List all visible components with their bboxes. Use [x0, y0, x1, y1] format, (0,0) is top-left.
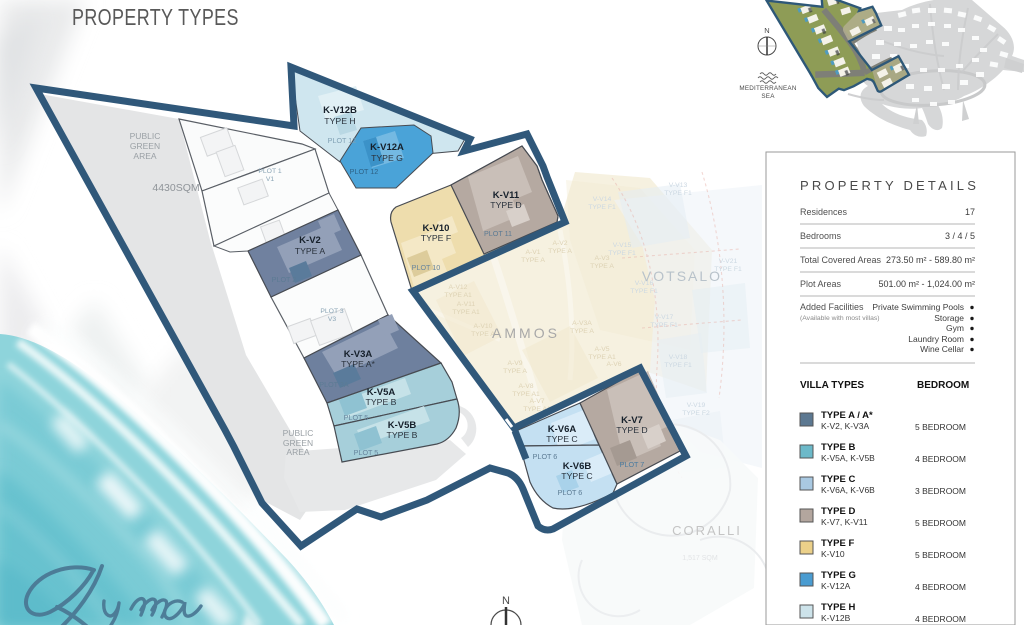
svg-text:A-V7: A-V7	[529, 398, 544, 405]
svg-text:N: N	[502, 595, 510, 607]
svg-text:TYPE G: TYPE G	[821, 570, 856, 581]
svg-text:17: 17	[965, 207, 975, 217]
svg-text:4 BEDROOM: 4 BEDROOM	[915, 582, 966, 592]
svg-text:PLOT 3A: PLOT 3A	[319, 380, 349, 389]
svg-text:GREEN: GREEN	[130, 141, 160, 151]
svg-text:K-V5A, K-V5B: K-V5A, K-V5B	[821, 453, 875, 463]
svg-text:SEA: SEA	[761, 93, 775, 100]
svg-text:PLOT 3: PLOT 3	[320, 308, 344, 315]
svg-text:TYPE B: TYPE B	[366, 397, 397, 407]
svg-text:AREA: AREA	[133, 151, 156, 161]
svg-text:Laundry Room: Laundry Room	[908, 334, 964, 344]
svg-text:4 BEDROOM: 4 BEDROOM	[915, 454, 966, 464]
svg-text:PROPERTY DETAILS: PROPERTY DETAILS	[800, 178, 979, 193]
svg-text:A-V9: A-V9	[507, 360, 522, 367]
svg-text:Private Swimming Pools: Private Swimming Pools	[872, 302, 964, 312]
svg-text:(Available with most villas): (Available with most villas)	[800, 315, 880, 322]
svg-text:A-V12: A-V12	[449, 284, 468, 291]
svg-text:TYPE F1: TYPE F1	[664, 362, 692, 369]
svg-text:TYPE A: TYPE A	[590, 263, 614, 270]
svg-text:K-V10: K-V10	[821, 549, 845, 559]
svg-text:TYPE A1: TYPE A1	[512, 391, 540, 398]
svg-text:TYPE F1: TYPE F1	[630, 288, 658, 295]
svg-text:Storage: Storage	[934, 313, 964, 323]
svg-text:PLOT 12: PLOT 12	[328, 136, 357, 145]
svg-text:PROPERTY TYPES: PROPERTY TYPES	[72, 5, 239, 31]
svg-text:PLOT 7: PLOT 7	[620, 460, 645, 469]
svg-text:TYPE A1: TYPE A1	[452, 309, 480, 316]
svg-text:K-V12B: K-V12B	[821, 613, 851, 623]
svg-text:A-V11: A-V11	[457, 301, 476, 308]
svg-text:Gym: Gym	[946, 323, 964, 333]
svg-text:5 BEDROOM: 5 BEDROOM	[915, 550, 966, 560]
svg-text:MEDITERRANEAN: MEDITERRANEAN	[739, 85, 796, 92]
svg-text:TYPE A: TYPE A	[521, 257, 545, 264]
svg-text:VILLA TYPES: VILLA TYPES	[800, 380, 864, 391]
svg-text:TYPE D: TYPE D	[616, 425, 647, 435]
svg-text:V3: V3	[328, 316, 337, 323]
svg-text:A-V10: A-V10	[474, 323, 493, 330]
svg-text:TYPE A: TYPE A	[295, 246, 326, 256]
svg-text:TYPE F1: TYPE F1	[588, 204, 616, 211]
svg-text:K-V12A: K-V12A	[821, 581, 851, 591]
svg-text:TYPE C: TYPE C	[821, 474, 855, 485]
svg-text:3 / 4 / 5: 3 / 4 / 5	[945, 231, 975, 241]
svg-text:Plot Areas: Plot Areas	[800, 279, 842, 289]
svg-text:V1: V1	[266, 176, 275, 183]
svg-text:4 BEDROOM: 4 BEDROOM	[915, 614, 966, 624]
svg-text:CORALLI: CORALLI	[672, 523, 742, 538]
svg-text:A-V6: A-V6	[606, 361, 621, 368]
svg-text:PLOT 10: PLOT 10	[412, 263, 441, 272]
svg-text:TYPE A: TYPE A	[570, 328, 594, 335]
svg-text:4430SQM: 4430SQM	[152, 182, 199, 194]
svg-text:PUBLIC: PUBLIC	[283, 428, 314, 438]
svg-text:V-V18: V-V18	[669, 354, 688, 361]
svg-text:V-V17: V-V17	[655, 314, 674, 321]
svg-text:TYPE H: TYPE H	[821, 602, 855, 613]
svg-text:Wine Cellar: Wine Cellar	[920, 344, 964, 354]
svg-text:Total Covered Areas: Total Covered Areas	[800, 255, 882, 265]
svg-text:N: N	[764, 26, 769, 35]
svg-text:TYPE B: TYPE B	[821, 442, 855, 453]
svg-text:Residences: Residences	[800, 207, 848, 217]
svg-text:TYPE G: TYPE G	[371, 153, 403, 163]
svg-text:K-V12A: K-V12A	[370, 142, 404, 153]
svg-text:TYPE C: TYPE C	[546, 434, 577, 444]
svg-text:VOTSALO: VOTSALO	[642, 268, 722, 284]
svg-text:TYPE A1: TYPE A1	[588, 354, 616, 361]
svg-text:V-V19: V-V19	[687, 402, 706, 409]
svg-text:V-V15: V-V15	[613, 242, 632, 249]
svg-text:501.00 m² - 1,024.00 m²: 501.00 m² - 1,024.00 m²	[878, 279, 975, 289]
svg-text:5 BEDROOM: 5 BEDROOM	[915, 518, 966, 528]
svg-text:TYPE F1: TYPE F1	[608, 250, 636, 257]
svg-text:PLOT 2: PLOT 2	[272, 275, 297, 284]
svg-text:PUBLIC: PUBLIC	[130, 131, 161, 141]
svg-text:1,517 SQM: 1,517 SQM	[682, 555, 718, 562]
svg-text:3 BEDROOM: 3 BEDROOM	[915, 486, 966, 496]
svg-text:BEDROOM: BEDROOM	[917, 380, 969, 391]
svg-text:PLOT 11: PLOT 11	[484, 229, 512, 238]
svg-text:TYPE F1: TYPE F1	[650, 322, 678, 329]
svg-text:TYPE A1: TYPE A1	[444, 292, 472, 299]
svg-text:TYPE A: TYPE A	[503, 368, 527, 375]
svg-text:273.50 m² - 589.80 m²: 273.50 m² - 589.80 m²	[886, 255, 975, 265]
svg-text:A-V8: A-V8	[518, 383, 533, 390]
svg-text:AREA: AREA	[286, 447, 309, 457]
svg-text:A-V5: A-V5	[594, 346, 609, 353]
svg-text:A-V1: A-V1	[525, 249, 540, 256]
svg-text:PLOT 1: PLOT 1	[258, 168, 282, 175]
svg-text:K-V12B: K-V12B	[323, 105, 357, 116]
svg-text:K-V2, K-V3A: K-V2, K-V3A	[821, 421, 870, 431]
svg-text:TYPE A*: TYPE A*	[341, 359, 375, 369]
svg-text:K-V7, K-V11: K-V7, K-V11	[821, 517, 868, 527]
svg-text:V-V21: V-V21	[719, 258, 738, 265]
svg-text:PLOT 6: PLOT 6	[533, 452, 558, 461]
svg-text:K-V6A, K-V6B: K-V6A, K-V6B	[821, 485, 875, 495]
svg-text:TYPE D: TYPE D	[490, 200, 521, 210]
svg-text:AMMOS: AMMOS	[492, 325, 560, 341]
svg-text:PLOT 5: PLOT 5	[344, 413, 369, 422]
svg-text:TYPE F: TYPE F	[821, 538, 854, 549]
svg-text:TYPE F: TYPE F	[421, 233, 451, 243]
svg-text:TYPE H: TYPE H	[324, 116, 355, 126]
svg-text:K-V2: K-V2	[299, 235, 321, 246]
svg-text:PLOT 12: PLOT 12	[350, 167, 379, 176]
svg-text:Bedrooms: Bedrooms	[800, 231, 842, 241]
svg-text:TYPE A / A*: TYPE A / A*	[821, 410, 873, 421]
svg-text:TYPE C: TYPE C	[561, 471, 592, 481]
svg-text:PLOT 6: PLOT 6	[558, 488, 583, 497]
svg-text:5 BEDROOM: 5 BEDROOM	[915, 422, 966, 432]
svg-text:TYPE F1: TYPE F1	[664, 190, 692, 197]
svg-text:PLOT 5: PLOT 5	[354, 448, 379, 457]
svg-text:A-V3A: A-V3A	[572, 320, 592, 327]
svg-text:TYPE F2: TYPE F2	[682, 410, 710, 417]
svg-text:TYPE B: TYPE B	[387, 430, 418, 440]
svg-text:TYPE D: TYPE D	[821, 506, 855, 517]
svg-text:A-V2: A-V2	[552, 240, 567, 247]
svg-text:TYPE A: TYPE A	[548, 248, 572, 255]
svg-text:V-V13: V-V13	[669, 182, 688, 189]
svg-text:V-V14: V-V14	[593, 196, 612, 203]
svg-text:Added Facilities: Added Facilities	[800, 302, 864, 312]
